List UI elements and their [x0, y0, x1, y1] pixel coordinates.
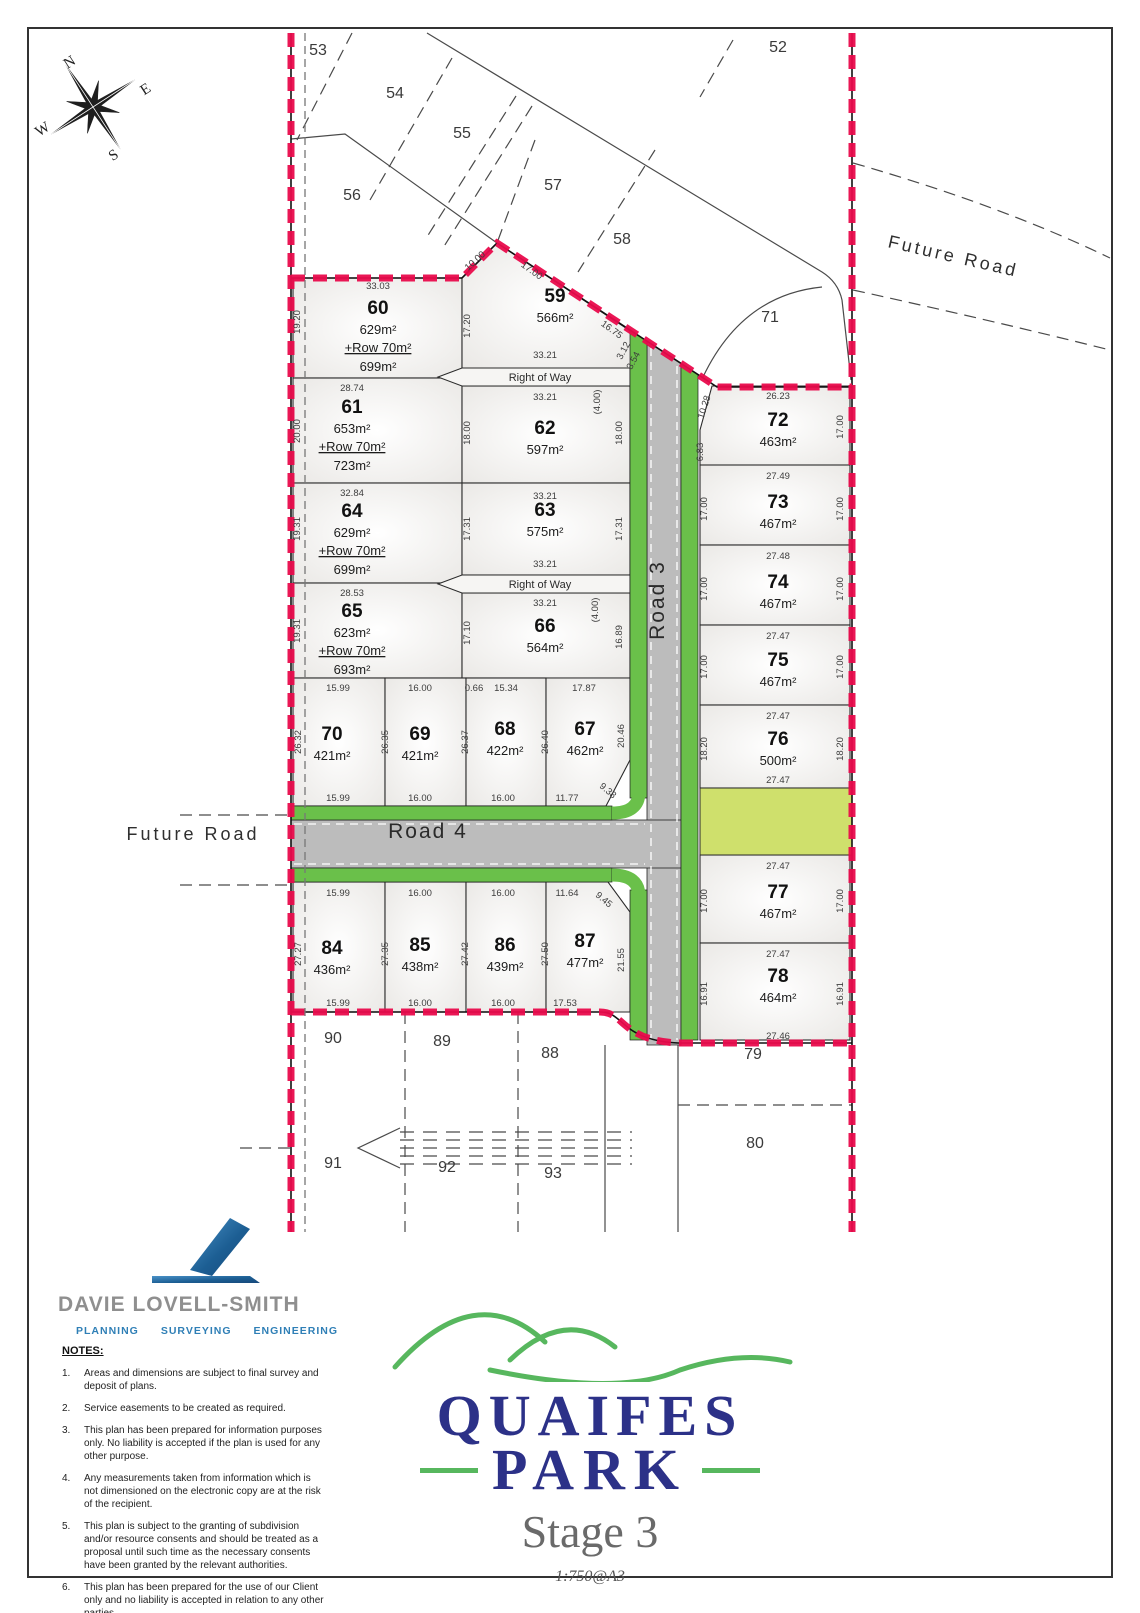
- adjacent-lot-54-number: 54: [386, 85, 404, 102]
- dimension-label: 21.55: [616, 948, 627, 972]
- dimension-label: 33.21: [533, 598, 557, 609]
- adjacent-lot-91-number: 91: [324, 1155, 342, 1172]
- dimension-label: 17.53: [553, 998, 577, 1009]
- adjacent-lot-89-number: 89: [433, 1033, 451, 1050]
- quaifes-park-hills-logo: [380, 1262, 800, 1382]
- note-text: This plan has been prepared for informat…: [84, 1424, 324, 1463]
- dimension-label: 27.47: [766, 861, 790, 872]
- lot-75-area: 467m²: [760, 674, 798, 689]
- lot-59-area: 566m²: [537, 310, 575, 325]
- adjacent-lot-92-number: 92: [438, 1159, 456, 1176]
- note-item: 4.Any measurements taken from informatio…: [62, 1472, 324, 1511]
- road-4-top-berm: [291, 806, 612, 820]
- adjacent-lot-52-number: 52: [769, 39, 787, 56]
- lot-76-number: 76: [767, 729, 788, 750]
- hill-right: [510, 1330, 615, 1360]
- dimension-label: 17.00: [699, 655, 710, 679]
- lot-64-row-area: +Row 70m²: [319, 543, 386, 558]
- lot-76-area: 500m²: [760, 753, 798, 768]
- lot-70-area: 421m²: [314, 748, 352, 763]
- project-name-line2: PARK: [492, 1441, 688, 1499]
- title-block: QUAIFES PARK Stage 3 1:750@A3: [360, 1262, 820, 1586]
- lot-87-number: 87: [574, 931, 595, 952]
- lot-67-area: 462m²: [567, 743, 605, 758]
- lot-72-area: 463m²: [760, 434, 798, 449]
- compass-n: N: [61, 53, 79, 72]
- road-3-label: Road 3: [646, 560, 669, 640]
- dimension-label: 20.00: [292, 419, 303, 443]
- note-number: 6.: [62, 1581, 84, 1613]
- dimension-label: 15.99: [326, 998, 350, 1009]
- adjacent-lot-56-number: 56: [343, 187, 361, 204]
- dimension-label: 19.31: [292, 517, 303, 541]
- lot-59-number: 59: [544, 286, 565, 307]
- lot-61-parcel[interactable]: [293, 378, 462, 483]
- dimension-label: 27.48: [766, 551, 790, 562]
- dimension-label: 16.91: [835, 982, 846, 1006]
- compass-s: S: [106, 147, 122, 165]
- note-text: Areas and dimensions are subject to fina…: [84, 1367, 324, 1393]
- dimension-label: 27.49: [766, 471, 790, 482]
- dimension-label: 27.42: [460, 942, 471, 966]
- hill-baseline: [490, 1358, 790, 1383]
- lot-60-total-area: 699m²: [360, 359, 398, 374]
- note-number: 2.: [62, 1402, 84, 1415]
- future-road-right-label: Future Road: [886, 231, 1020, 280]
- lot-86-area: 439m²: [487, 959, 525, 974]
- dimension-label: 16.00: [408, 998, 432, 1009]
- lot-78-number: 78: [767, 966, 788, 987]
- dimension-label: 27.27: [293, 942, 304, 966]
- lot-70-number: 70: [321, 724, 342, 745]
- reserve-strip: [700, 788, 852, 855]
- dimension-label: 33.03: [366, 281, 390, 292]
- dimension-label: 27.46: [766, 1031, 790, 1042]
- lot-64-parcel[interactable]: [293, 483, 462, 583]
- road-4-label: Road 4: [388, 820, 468, 843]
- note-text: Service easements to be created as requi…: [84, 1402, 286, 1415]
- dimension-label: 17.00: [699, 577, 710, 601]
- lot-63-area: 575m²: [527, 524, 565, 539]
- dimension-label: 33.21: [533, 491, 557, 502]
- dimension-label: 27.47: [766, 775, 790, 786]
- scale-label: 1:750@A3: [360, 1568, 820, 1586]
- lot-65-row-area: +Row 70m²: [319, 643, 386, 658]
- lot-62-area: 597m²: [527, 442, 565, 457]
- dimension-label: 20.46: [616, 724, 627, 748]
- lot-75-number: 75: [767, 650, 789, 671]
- adjacent-lot-57-number: 57: [544, 177, 562, 194]
- lot-86-number: 86: [494, 935, 515, 956]
- dimension-label: 17.00: [699, 889, 710, 913]
- lot-60-area: 629m²: [360, 322, 398, 337]
- note-text: Any measurements taken from information …: [84, 1472, 324, 1511]
- dimension-label: (4.00): [592, 390, 603, 415]
- lot-64-number: 64: [341, 501, 363, 522]
- note-number: 3.: [62, 1424, 84, 1463]
- dimension-label: 17.00: [835, 497, 846, 521]
- dimension-label: 16.89: [614, 625, 625, 649]
- lot-65-total-area: 693m²: [334, 662, 372, 677]
- dimension-label: 6.83: [695, 443, 706, 462]
- dimension-label: 33.21: [533, 350, 557, 361]
- road-3-right-berm: [681, 363, 698, 1040]
- lot-62-number: 62: [534, 418, 555, 439]
- dimension-label: 16.00: [408, 793, 432, 804]
- lot-77-area: 467m²: [760, 906, 798, 921]
- dimension-label: 17.00: [835, 415, 846, 439]
- dimension-label: 19.20: [292, 310, 303, 334]
- dimension-label: 17.87: [572, 683, 596, 694]
- note-text: This plan has been prepared for the use …: [84, 1581, 324, 1613]
- lot-65-number: 65: [341, 601, 363, 622]
- stage-label: Stage 3: [360, 1505, 820, 1558]
- dimension-label: 26.23: [766, 391, 790, 402]
- dimension-label: 17.00: [835, 889, 846, 913]
- dimension-label: 11.64: [555, 888, 578, 899]
- dimension-label: 11.77: [555, 793, 578, 804]
- road-3-left-berm-lower: [630, 890, 647, 1040]
- note-number: 1.: [62, 1367, 84, 1393]
- dimension-label: 16.00: [491, 998, 515, 1009]
- firm-name: Davie Lovell-Smith: [58, 1293, 328, 1317]
- dimension-label: 15.99: [326, 793, 350, 804]
- lot-64-total-area: 699m²: [334, 562, 372, 577]
- lot-87-area: 477m²: [567, 955, 605, 970]
- dimension-label: 27.35: [380, 942, 391, 966]
- future-road-left-label: Future Road: [126, 824, 259, 844]
- lot-74-number: 74: [767, 572, 789, 593]
- lot-68-number: 68: [494, 719, 515, 740]
- lot-63-number: 63: [534, 500, 555, 521]
- note-text: This plan is subject to the granting of …: [84, 1520, 324, 1572]
- adjacent-lot-53-number: 53: [309, 42, 327, 59]
- note-item: 5.This plan is subject to the granting o…: [62, 1520, 324, 1572]
- dimension-label: 33.21: [533, 392, 557, 403]
- dimension-label: 18.00: [614, 421, 625, 445]
- adjacent-lot-55-number: 55: [453, 125, 471, 142]
- discipline-engineering: ENGINEERING: [254, 1325, 339, 1337]
- dimension-label: 16.00: [408, 888, 432, 899]
- adjacent-lot-93-number: 93: [544, 1165, 562, 1182]
- dimension-label: 26.40: [540, 730, 551, 754]
- notes-list: 1.Areas and dimensions are subject to fi…: [62, 1367, 324, 1613]
- adjacent-lot-79-number: 79: [744, 1046, 762, 1063]
- lot-84-area: 436m²: [314, 962, 352, 977]
- adjacent-lot-58-number: 58: [613, 231, 631, 248]
- lot-66-number: 66: [534, 616, 555, 637]
- plan-sheet: Road 3 Road 4 Future Road Future Road Ri…: [0, 0, 1140, 1613]
- dimension-label: (4.00): [590, 598, 601, 623]
- compass-rose: N E S W: [24, 38, 162, 176]
- compass-e: E: [138, 80, 154, 98]
- note-item: 3.This plan has been prepared for inform…: [62, 1424, 324, 1463]
- lot-73-number: 73: [767, 492, 788, 513]
- dimension-label: 26.37: [460, 730, 471, 754]
- dimension-label: 18.00: [462, 421, 473, 445]
- dimension-label: 19.31: [292, 619, 303, 643]
- dimension-label: 16.91: [699, 982, 710, 1006]
- dimension-label: 17.00: [835, 655, 846, 679]
- adjacent-lot-90-number: 90: [324, 1030, 342, 1047]
- logo-slant: [190, 1218, 250, 1276]
- lot-85-area: 438m²: [402, 959, 440, 974]
- dimension-label: 26.32: [293, 730, 304, 754]
- road-4-carriageway: [291, 820, 681, 868]
- firm-disciplines: PLANNING SURVEYING ENGINEERING: [58, 1325, 328, 1337]
- hill-left: [395, 1315, 545, 1367]
- dimension-label: 17.00: [835, 577, 846, 601]
- dimension-label: 26.35: [380, 730, 391, 754]
- lot-60-number: 60: [367, 298, 388, 319]
- lot-65-area: 623m²: [334, 625, 372, 640]
- dimension-label: 32.84: [340, 488, 364, 499]
- adjacent-lot-71-number: 71: [761, 309, 779, 326]
- dimension-label: 15.99: [326, 683, 350, 694]
- dimension-label: 15.99: [326, 888, 350, 899]
- dimension-label: 28.74: [340, 383, 364, 394]
- compass-w: W: [33, 119, 54, 141]
- lot-84-number: 84: [321, 938, 343, 959]
- dimension-label: 16.00: [491, 888, 515, 899]
- note-number: 4.: [62, 1472, 84, 1511]
- right-of-way-label-2: Right of Way: [509, 579, 572, 591]
- lot-61-row-area: +Row 70m²: [319, 439, 386, 454]
- notes-block: NOTES: 1.Areas and dimensions are subjec…: [62, 1345, 324, 1613]
- note-item: 6.This plan has been prepared for the us…: [62, 1581, 324, 1613]
- green-dash-left: [420, 1468, 478, 1473]
- dimension-label: 33.21: [533, 559, 557, 570]
- dimension-label: 16.00: [408, 683, 432, 694]
- lot-64-area: 629m²: [334, 525, 372, 540]
- dimension-label: 15.34: [494, 683, 518, 694]
- lot-68-area: 422m²: [487, 743, 525, 758]
- road-3-carriageway: [647, 341, 681, 1045]
- dimension-label: 27.50: [540, 942, 551, 966]
- note-item: 1.Areas and dimensions are subject to fi…: [62, 1367, 324, 1393]
- dimension-label: 18.20: [835, 737, 846, 761]
- adjacent-lot-88-number: 88: [541, 1045, 559, 1062]
- lot-73-area: 467m²: [760, 516, 798, 531]
- notes-heading: NOTES:: [62, 1345, 324, 1357]
- logo-base: [152, 1276, 260, 1283]
- dimension-label: 16.00: [491, 793, 515, 804]
- road-3-left-berm-upper: [630, 330, 647, 798]
- note-item: 2.Service easements to be created as req…: [62, 1402, 324, 1415]
- davie-lovell-smith-logo: [138, 1208, 288, 1288]
- dimension-label: 0.66: [465, 683, 484, 694]
- dimension-label: 27.47: [766, 949, 790, 960]
- adjacent-lot-80-number: 80: [746, 1135, 764, 1152]
- dimension-label: 27.47: [766, 711, 790, 722]
- lot-65-parcel[interactable]: [293, 583, 462, 678]
- future-road-arrow: [358, 1128, 632, 1168]
- lot-61-number: 61: [341, 397, 363, 418]
- surveyor-brand-block: Davie Lovell-Smith PLANNING SURVEYING EN…: [58, 1208, 328, 1337]
- lot-85-number: 85: [409, 935, 431, 956]
- lot-77-number: 77: [767, 882, 788, 903]
- lot-74-area: 467m²: [760, 596, 798, 611]
- dimension-label: 17.31: [462, 517, 473, 541]
- lot-66-area: 564m²: [527, 640, 565, 655]
- dimension-label: 17.00: [699, 497, 710, 521]
- discipline-planning: PLANNING: [76, 1325, 139, 1337]
- discipline-surveying: SURVEYING: [161, 1325, 232, 1337]
- lot-78-area: 464m²: [760, 990, 798, 1005]
- dimension-label: 17.10: [462, 621, 473, 645]
- lot-72-number: 72: [767, 410, 788, 431]
- note-number: 5.: [62, 1520, 84, 1572]
- road-4-bottom-berm: [291, 868, 612, 882]
- lot-69-area: 421m²: [402, 748, 440, 763]
- dimension-label: 27.47: [766, 631, 790, 642]
- lot-69-number: 69: [409, 724, 430, 745]
- right-of-way-label-1: Right of Way: [509, 372, 572, 384]
- lot-61-area: 653m²: [334, 421, 372, 436]
- dimension-label: 18.20: [699, 737, 710, 761]
- lot-67-number: 67: [574, 719, 595, 740]
- lot-61-total-area: 723m²: [334, 458, 372, 473]
- dimension-label: 17.31: [614, 517, 625, 541]
- dimension-label: 17.20: [462, 314, 473, 338]
- lot-60-row-area: +Row 70m²: [345, 340, 412, 355]
- green-dash-right: [702, 1468, 760, 1473]
- dimension-label: 28.53: [340, 588, 364, 599]
- lot-68-parcel[interactable]: [466, 678, 546, 806]
